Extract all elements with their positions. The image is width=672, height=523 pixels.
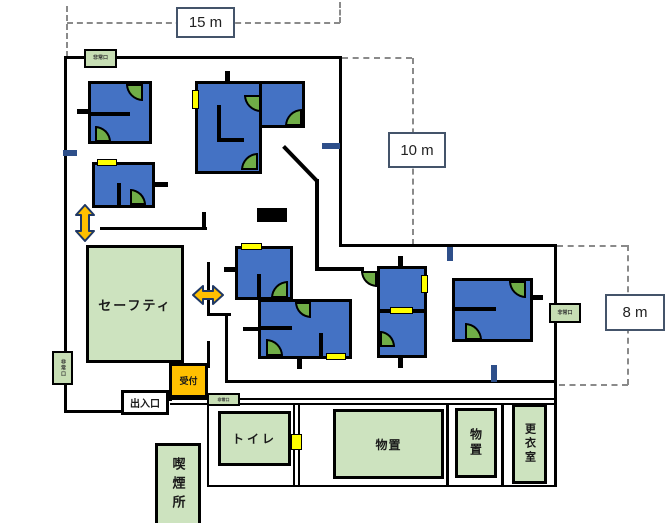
wall-mid-h2 [315, 267, 364, 271]
floor-plan: セーフティ 受付 出入口 トイレ 喫煙所 物置 物置 更衣室 非常口 非常口 非… [0, 0, 672, 523]
dim-tick-upper [342, 57, 412, 59]
dimension-top-width: 15 m [176, 7, 235, 38]
opening-marker-navy [322, 143, 340, 149]
door-marker-yellow [390, 307, 413, 314]
annex-wall-left [207, 403, 209, 487]
area-reception: 受付 [169, 363, 208, 398]
dim-tick-top-right [339, 2, 341, 23]
area-toilet-label: トイレ [232, 430, 277, 447]
area-smoking-label: 喫煙所 [169, 457, 188, 514]
stub-room-7-bottom [398, 356, 403, 368]
room-2-partition [117, 183, 121, 206]
door-marker-yellow [192, 90, 199, 109]
area-changing: 更衣室 [512, 404, 547, 484]
area-toilet: トイレ [218, 411, 291, 466]
area-entrance: 出入口 [121, 390, 169, 415]
room-8-partition [455, 307, 496, 311]
wall-diagonal [282, 145, 319, 183]
wall-right [554, 244, 557, 487]
annex-divider-2 [501, 403, 504, 487]
room-1-partition [91, 112, 130, 116]
exit-sign-right-label: 非常口 [557, 311, 572, 316]
double-arrow-horizontal-icon [192, 285, 224, 305]
area-storage-large: 物置 [333, 409, 444, 479]
stub-room-6-bottom [297, 357, 302, 369]
annex-divider-1 [446, 403, 449, 487]
dim-tick-8m-bottom [559, 384, 628, 386]
area-smoking: 喫煙所 [155, 443, 201, 523]
exit-sign-right: 非常口 [549, 303, 581, 323]
room-3-partition-v [217, 105, 221, 142]
room-6-partition-v [319, 333, 323, 357]
stub-room-7-top [398, 256, 403, 268]
area-reception-label: 受付 [179, 374, 197, 387]
exit-sign-top: 非常口 [84, 49, 117, 68]
opening-marker-navy [447, 247, 453, 261]
exit-sign-inner-label: 非常口 [218, 398, 230, 402]
dimension-top-width-label: 15 m [189, 14, 222, 31]
wall-corridor-h [207, 313, 231, 316]
stub-room-5 [224, 267, 236, 272]
area-storage-small-label: 物置 [468, 428, 485, 458]
area-safety-label: セーフティ [98, 295, 171, 314]
door-marker-yellow [291, 434, 302, 450]
wall-bottom-main [225, 380, 557, 383]
dimension-upper-right-height: 10 m [388, 132, 446, 168]
dim-tick-top-left [66, 6, 68, 57]
exit-sign-left-label: 非常口 [60, 359, 65, 377]
area-storage-large-label: 物置 [375, 436, 401, 453]
wall-bottom-left [64, 410, 124, 413]
door-marker-yellow [241, 243, 262, 250]
stub-room-1 [77, 109, 89, 114]
exit-sign-top-label: 非常口 [93, 56, 108, 61]
opening-marker-navy [63, 150, 77, 156]
area-changing-label: 更衣室 [522, 423, 538, 465]
block-rect [257, 208, 287, 222]
area-safety: セーフティ [86, 245, 184, 363]
double-arrow-vertical-icon [75, 204, 95, 242]
dimension-upper-right-label: 10 m [400, 142, 433, 159]
area-storage-small: 物置 [455, 408, 497, 478]
exit-sign-inner: 非常口 [207, 393, 240, 406]
door-marker-yellow [97, 159, 117, 166]
wall-tick-corridor [202, 212, 206, 230]
room-5-partition [257, 274, 261, 298]
stub-room-6-left [243, 327, 259, 331]
door-marker-yellow [421, 275, 428, 293]
stub-room-8 [531, 295, 543, 300]
exit-sign-left: 非常口 [52, 351, 73, 385]
wall-mid-vertical [315, 179, 319, 271]
dimension-lower-right-height: 8 m [605, 294, 665, 331]
wall-right-upper [339, 56, 342, 247]
room-6-partition-h [261, 326, 292, 330]
stub-room-2 [153, 182, 168, 187]
annex-wall-bottom [207, 485, 557, 487]
wall-corridor-top [100, 227, 207, 230]
area-entrance-label: 出入口 [130, 395, 160, 410]
stub-room-3 [225, 71, 230, 83]
dim-tick-8m-top [557, 245, 627, 247]
wall-connector-vertical [225, 316, 228, 383]
door-swing-icon [361, 271, 377, 287]
dimension-lower-right-label: 8 m [622, 304, 647, 321]
room-3-partition-h [217, 138, 244, 142]
opening-marker-navy [491, 365, 497, 382]
door-marker-yellow [326, 353, 346, 360]
